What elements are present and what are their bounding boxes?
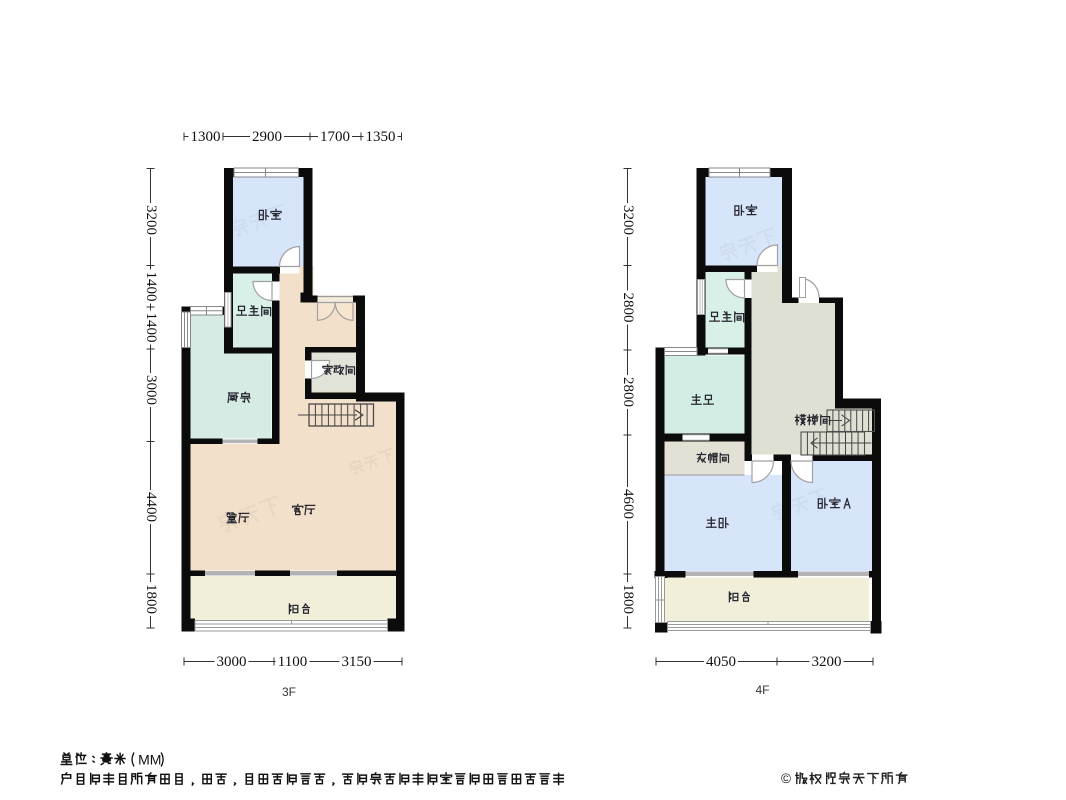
svg-text:4600: 4600 <box>620 489 636 519</box>
svg-text:1300: 1300 <box>191 129 221 145</box>
svg-text:1400: 1400 <box>143 313 159 343</box>
svg-text:2800: 2800 <box>620 377 636 407</box>
svg-text:©: © <box>781 771 791 786</box>
svg-text:1800: 1800 <box>143 584 159 614</box>
svg-text:3200: 3200 <box>143 205 159 235</box>
svg-text:1700: 1700 <box>320 129 350 145</box>
svg-text:1400: 1400 <box>143 272 159 302</box>
svg-text:2800: 2800 <box>620 293 636 323</box>
svg-text:4F: 4F <box>755 683 769 697</box>
svg-text:3000: 3000 <box>217 654 247 670</box>
svg-text:3000: 3000 <box>143 375 159 405</box>
svg-text:3F: 3F <box>282 685 296 699</box>
svg-text:2900: 2900 <box>252 129 282 145</box>
svg-text:MM: MM <box>138 752 161 768</box>
svg-text:3200: 3200 <box>620 205 636 235</box>
svg-text:1350: 1350 <box>366 129 396 145</box>
svg-text:3150: 3150 <box>342 654 372 670</box>
svg-text:1100: 1100 <box>278 654 307 670</box>
svg-text:3200: 3200 <box>812 654 842 670</box>
svg-text:1800: 1800 <box>620 584 636 614</box>
svg-text:4050: 4050 <box>706 654 736 670</box>
svg-text:4400: 4400 <box>143 492 159 522</box>
